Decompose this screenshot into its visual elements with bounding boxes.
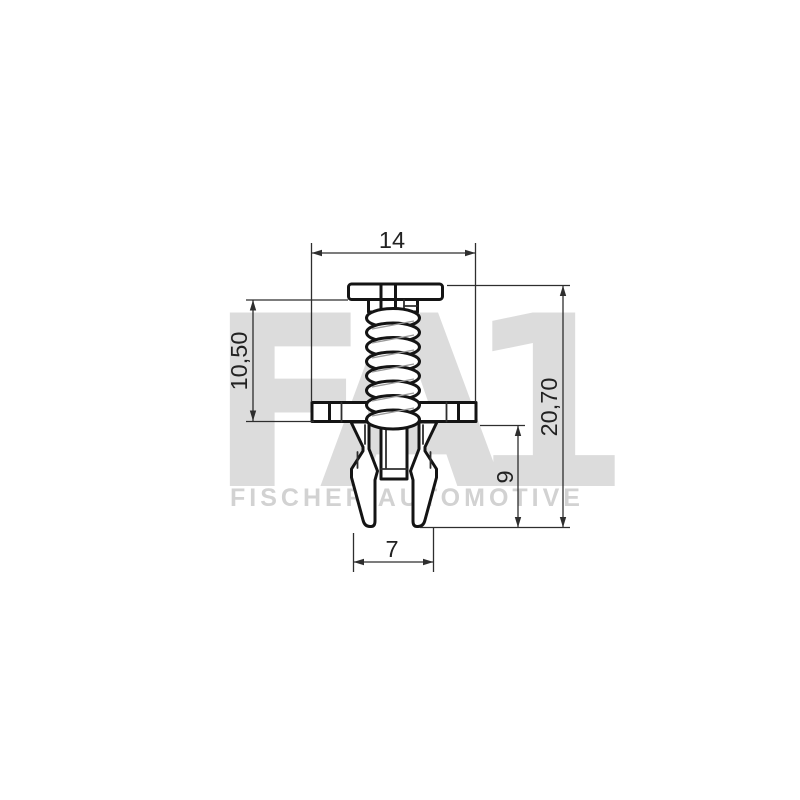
technical-drawing: 14 10,50 20,70 9 (0, 0, 800, 800)
dim-label-7: 7 (385, 536, 398, 562)
dim-label-10-50: 10,50 (226, 332, 252, 391)
arrowhead (250, 411, 256, 422)
clip-part (312, 284, 476, 527)
dim-label-9: 9 (492, 470, 518, 483)
dim-label-14: 14 (379, 227, 405, 253)
arrowhead (560, 517, 566, 528)
dim-leg-length: 9 (480, 426, 525, 528)
flange-right (419, 403, 476, 422)
arrowhead (515, 517, 521, 528)
arrowhead (423, 559, 434, 565)
drawing-page: FA1 FISCHER AUTOMOTIVE (0, 0, 800, 800)
arrowhead (354, 559, 365, 565)
arrowhead (250, 300, 256, 311)
arrowhead (560, 286, 566, 297)
dim-tip-span: 7 (354, 528, 434, 572)
dim-label-20-70: 20,70 (536, 378, 562, 437)
arrowhead (515, 426, 521, 437)
coil-turn (367, 410, 420, 429)
arrowhead (465, 250, 476, 256)
center-stem (381, 422, 407, 479)
spring-coil (367, 309, 420, 430)
arrowhead (312, 250, 323, 256)
flange-left (312, 403, 368, 422)
